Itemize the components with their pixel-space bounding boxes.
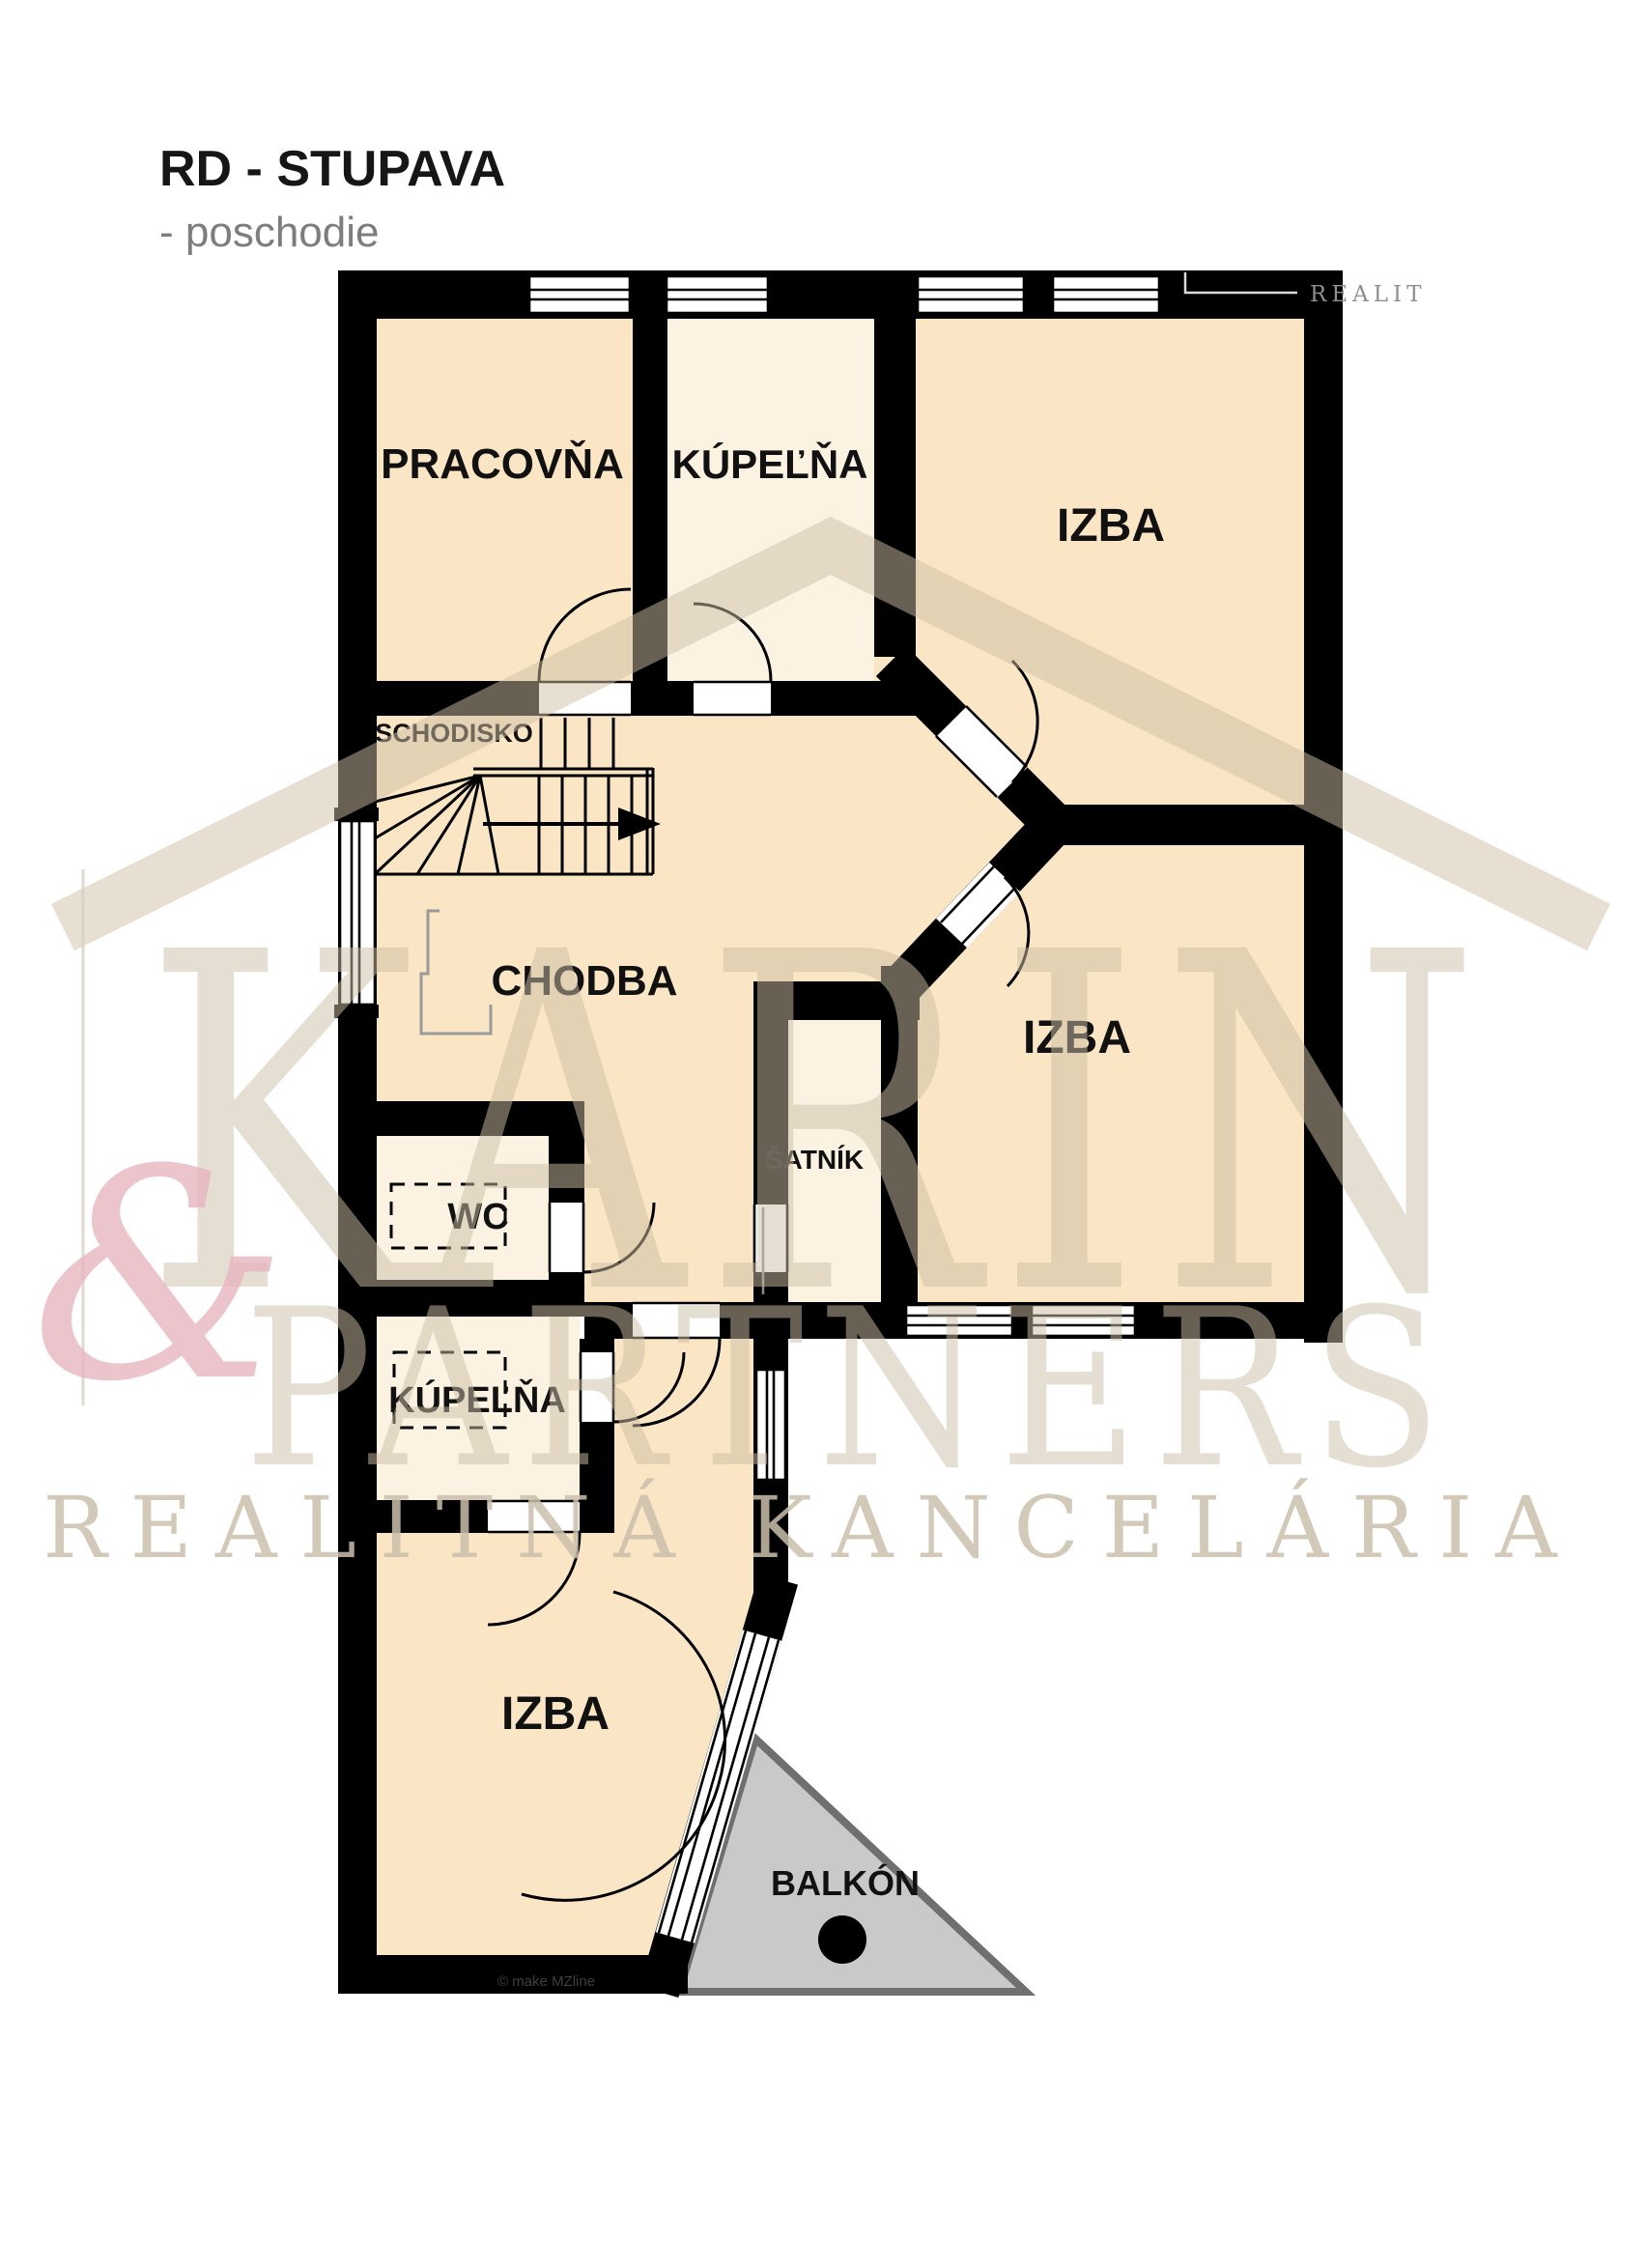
opening-kupelna2-side <box>580 1352 614 1422</box>
watermark-ampersand: & <box>30 1108 288 1445</box>
copyright-text: © make MZline <box>497 1973 595 1990</box>
window-icon-neck <box>756 1370 785 1480</box>
label-pracovna: PRACOVŇA <box>381 439 624 488</box>
label-kupelna-bottom: KÚPEĽŇA <box>388 1378 566 1421</box>
window-icon-top-3 <box>918 276 1024 313</box>
watermark-corner-label: REALIT <box>1310 282 1426 307</box>
opening-kupelna-top <box>694 681 771 716</box>
room-kupelna-top <box>667 319 874 684</box>
window-icon-top-1 <box>529 276 630 313</box>
wall-izba2-left <box>881 966 918 1339</box>
balcony-column-icon <box>818 1915 866 1964</box>
wall-between-izby <box>1048 805 1304 845</box>
opening-satnik <box>753 1205 788 1272</box>
window-icon-top-2 <box>667 276 768 313</box>
opening-pracovna <box>539 681 631 716</box>
label-izba-top: IZBA <box>1057 500 1165 552</box>
wall-wc-bottom <box>377 1280 584 1317</box>
window-icon-left <box>334 808 379 1018</box>
window-icon-bottom-2 <box>1032 1305 1135 1336</box>
page-title: RD - STUPAVA <box>159 141 505 197</box>
window-icon-top-4 <box>1053 276 1159 313</box>
watermark-tagline: REALITNÁ KANCELÁRIA <box>43 1478 1579 1577</box>
wall-top <box>338 270 1343 319</box>
label-chodba: CHODBA <box>491 957 677 1005</box>
label-kupelna-top: KÚPEĽŇA <box>671 440 867 487</box>
window-icon-bottom-1 <box>906 1305 1012 1336</box>
wall-right <box>1304 270 1343 1343</box>
floor-plan-page: PRACOVŇA KÚPEĽŇA IZBA SCHODISKO CHODBA I… <box>0 0 1646 2268</box>
opening-wc <box>549 1203 584 1272</box>
label-izba-bottom: IZBA <box>501 1688 610 1740</box>
label-wc: WC <box>447 1197 508 1237</box>
wall-kupelna-izba <box>874 319 916 657</box>
label-balkon: BALKÓN <box>771 1862 920 1903</box>
wall-left <box>338 270 377 1994</box>
opening-kupelna2-bottom <box>488 1500 580 1533</box>
label-schodisko: SCHODISKO <box>375 719 533 748</box>
opening-corridor <box>633 1302 720 1339</box>
floor-plan-drawing: PRACOVŇA KÚPEĽŇA IZBA SCHODISKO CHODBA I… <box>0 0 1646 2268</box>
label-izba-right: IZBA <box>1023 1012 1131 1063</box>
wall-top-rooms-bottom <box>377 681 918 716</box>
wall-pracovna-kupelna <box>633 319 667 686</box>
page-subtitle: - poschodie <box>159 209 379 256</box>
label-satnik: ŠATNÍK <box>765 1144 864 1175</box>
